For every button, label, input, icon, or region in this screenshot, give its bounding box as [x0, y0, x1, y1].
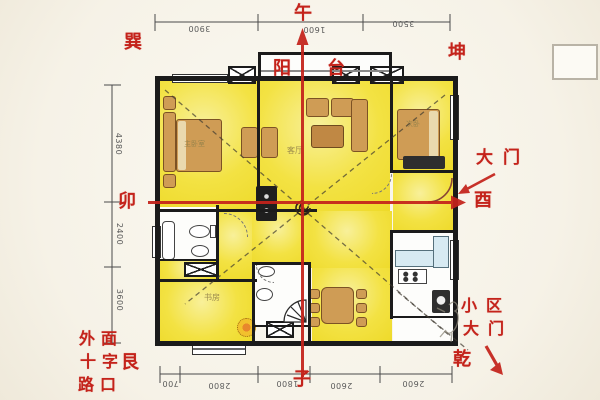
gate-arrow [486, 346, 498, 367]
main-door-arrowhead-icon [458, 184, 470, 194]
east-arrowhead-icon [451, 196, 466, 210]
compass-left-label: 卯 [118, 193, 136, 211]
floor-plan-canvas: 主卧室 客厅 次卧 书房 [0, 0, 600, 400]
entrance-door-arc [428, 178, 452, 202]
crossroads-label-row2: 十字 [80, 354, 124, 370]
dimension-bottom-5: 2600 [402, 379, 424, 387]
animal-sketch [437, 302, 458, 342]
compass-bottom-right-label: 乾 [453, 351, 471, 369]
dimension-bottom-4: 2600 [330, 381, 352, 389]
dimension-bottom-2: 2800 [208, 381, 230, 389]
balcony-label-char2: 台 [327, 60, 345, 78]
main-door-arrow [465, 174, 495, 190]
compass-top-right-label: 坤 [448, 44, 466, 62]
dimension-top-2: 1600 [303, 25, 325, 33]
compass-top-left-label: 巽 [124, 34, 142, 52]
dimension-bottom-3: 1800 [276, 379, 298, 387]
dimension-left-3: 3600 [115, 289, 123, 311]
balcony-label-char1: 阳 [273, 60, 291, 78]
community-gate-label-row2: 大门 [463, 321, 513, 337]
dimension-bottom-1: 700 [162, 379, 179, 387]
dimension-top-1: 3900 [188, 24, 210, 32]
main-door-label: 大门 [476, 150, 530, 167]
compass-right-label: 酉 [474, 192, 492, 210]
crossroads-label-row1: 外面 [79, 331, 123, 347]
compass-top-label: 午 [294, 5, 312, 23]
dimension-top-3: 3500 [392, 19, 414, 27]
red-axes [148, 28, 503, 377]
dimension-left-2: 2400 [115, 223, 123, 245]
community-gate-label-row1: 小区 [461, 298, 511, 314]
crossroads-label-row3: 路口 [78, 377, 122, 393]
dimension-left-1: 4380 [114, 133, 122, 155]
diagonal-line-2 [185, 95, 445, 304]
